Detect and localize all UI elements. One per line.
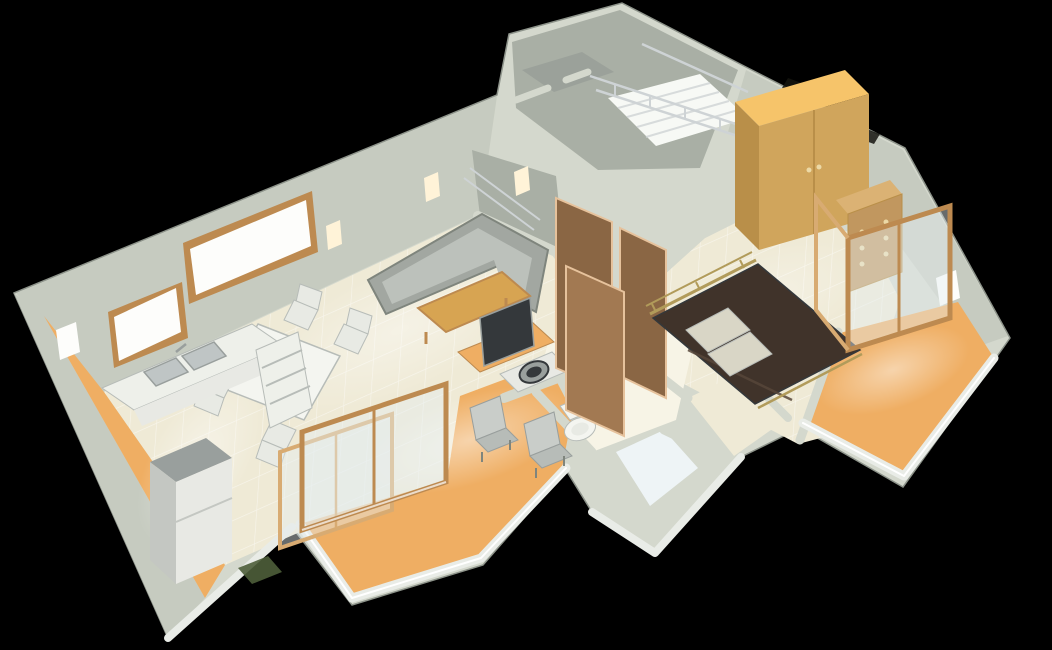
wood-door-panel-3 [566, 266, 624, 436]
wood-door-panel-2 [620, 228, 666, 398]
refrigerator [150, 438, 232, 584]
apartment-3d-render: 3D cutaway rendering of a one-bedroom ap… [0, 0, 1052, 650]
wardrobe-side [735, 102, 759, 250]
wardrobe-handle-1 [807, 168, 812, 173]
screenshot-root: 3D cutaway rendering of a one-bedroom ap… [0, 0, 1052, 650]
wardrobe-handle-2 [817, 165, 822, 170]
